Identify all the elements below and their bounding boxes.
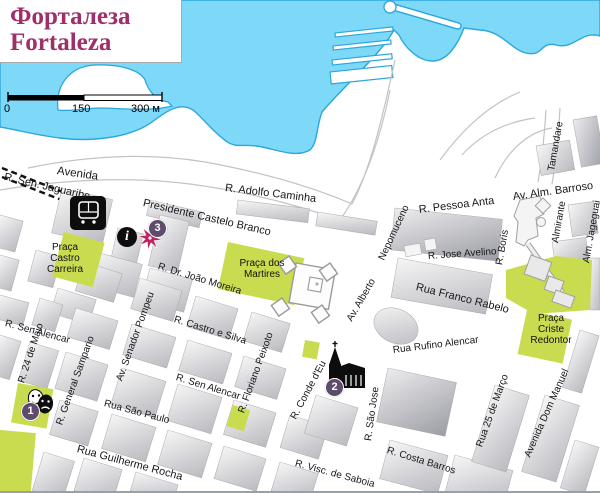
map-title-ru: Форталеза <box>10 4 181 30</box>
scale-label-mid: 150 <box>72 103 90 115</box>
scale-label-zero: 0 <box>4 103 10 115</box>
marker-3: 3 <box>148 219 167 238</box>
marker-2: 2 <box>325 378 344 397</box>
park-label-castro-carreira: Praça Castro Carreira <box>34 242 96 275</box>
park-label-dos-martires: Praça dos Martires <box>230 258 294 280</box>
info-icon: i <box>117 227 137 247</box>
park-small-alberto <box>302 340 320 359</box>
title-box: Форталеза Fortaleza <box>0 0 182 63</box>
park-label-criste-redontor: Praça Criste Redontor <box>520 313 582 346</box>
marker-1: 1 <box>21 402 40 421</box>
scale-label-end: 300 м <box>131 103 160 115</box>
map-title-en: Fortaleza <box>10 30 181 56</box>
park-bottom-left <box>0 430 36 493</box>
map-title: Форталеза Fortaleza <box>0 0 181 55</box>
map-canvas: Форталеза Fortaleza 0 150 300 м Avenida … <box>0 0 600 493</box>
